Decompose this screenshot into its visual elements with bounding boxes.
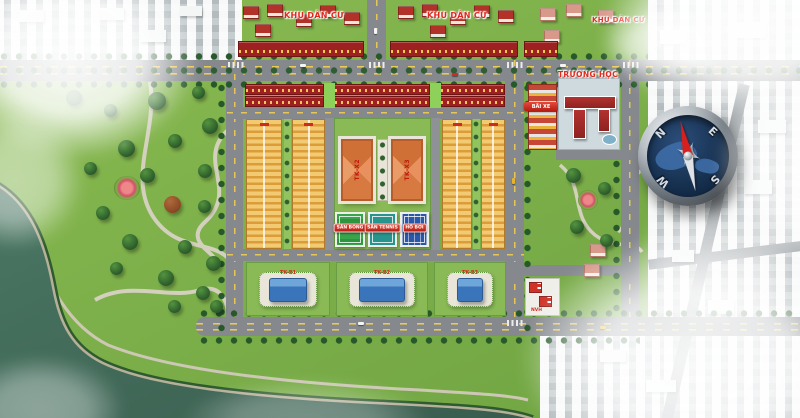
autumn-tree <box>164 196 181 213</box>
villa-house <box>255 24 271 37</box>
tree-row <box>217 84 226 334</box>
compass-west-label: W <box>654 173 672 191</box>
car <box>560 64 566 67</box>
villa-house <box>498 10 514 23</box>
villa-house <box>540 8 556 21</box>
blue-roof-building <box>359 278 405 302</box>
tower-plaza <box>377 139 388 201</box>
blue-roof-building <box>457 278 483 302</box>
swimming-pool-court: HỒ BƠI <box>400 212 429 247</box>
tree <box>198 164 212 178</box>
villa-house <box>267 4 283 17</box>
tree <box>110 262 123 275</box>
tennis-court-banner: SÂN TENNIS <box>364 224 401 233</box>
amenity-lot-1: TK-B1 <box>246 262 330 316</box>
villa-house <box>243 6 259 19</box>
pool-block-2-code: TK-B2 <box>337 270 427 276</box>
blue-roof-building <box>269 278 307 302</box>
shophouse-row <box>334 84 430 95</box>
car <box>374 28 377 34</box>
tree <box>96 206 110 220</box>
shophouse-row <box>524 41 558 57</box>
tower-block-left: TK-X2 <box>341 139 373 201</box>
rowhouse-block <box>442 119 472 249</box>
road-inner-south <box>227 249 524 261</box>
shophouse-row <box>245 84 324 95</box>
tree <box>206 256 221 271</box>
green-gap <box>324 83 335 108</box>
swimming-pool-banner: HỒ BƠI <box>402 224 426 233</box>
shophouse-row <box>334 96 430 107</box>
villa-house <box>398 6 414 19</box>
villa-house <box>566 4 582 17</box>
cloud <box>600 8 730 83</box>
compass-pivot <box>684 152 693 161</box>
shophouse-row <box>245 96 324 107</box>
car <box>512 178 515 184</box>
shophouse-row <box>440 96 505 107</box>
tree <box>198 200 211 213</box>
tree <box>84 162 97 175</box>
car <box>452 73 458 76</box>
tree <box>158 270 174 286</box>
villa-house <box>344 12 360 25</box>
tree <box>600 234 613 247</box>
pool-block-3-code: TK-B3 <box>435 270 505 276</box>
tree <box>196 286 210 300</box>
tower-right-code: TK-X3 <box>404 159 411 181</box>
shophouse-row <box>390 41 518 57</box>
tree <box>168 300 181 313</box>
football-field-banner: SÂN BÓNG <box>334 224 367 233</box>
shophouse-row <box>440 84 505 95</box>
football-field: SÂN BÓNG <box>335 212 365 247</box>
rowhouse-block <box>292 119 325 249</box>
tree <box>210 300 223 313</box>
amenity-lot-2: TK-B2 <box>336 262 428 316</box>
green-gap <box>430 83 441 108</box>
community-house-building <box>529 282 542 293</box>
compass-east-label: E <box>706 124 720 139</box>
tree <box>178 240 192 254</box>
tower-left-code: TK-X2 <box>354 159 361 181</box>
road-east-boundary <box>505 60 524 336</box>
compass-north-label: N <box>653 126 669 142</box>
residential-area-label: KHU DÂN CƯ <box>284 11 344 20</box>
school-building <box>573 109 586 139</box>
school-building <box>598 109 610 132</box>
pool-block-1-code: TK-B1 <box>247 270 329 276</box>
tower-block-right: TK-X3 <box>391 139 423 201</box>
tree <box>140 168 155 183</box>
car <box>300 64 306 67</box>
green-alley <box>284 119 291 249</box>
tree <box>566 168 581 183</box>
tree <box>168 134 182 148</box>
school-building <box>564 96 616 109</box>
tree <box>570 220 584 234</box>
tree <box>598 182 611 195</box>
tree <box>202 118 218 134</box>
residential-area-label: KHU DÂN CƯ <box>427 11 487 20</box>
road-school-south <box>556 150 640 160</box>
parking-lot <box>528 84 557 150</box>
rowhouse-block <box>481 119 505 249</box>
school-label: TRƯỜNG HỌC <box>558 70 618 79</box>
tree <box>122 234 138 250</box>
masterplan-map: TK-X2 TK-X3 SÂN BÓNG SÂN TENNIS HỒ BƠI T… <box>0 0 800 418</box>
amenity-lot-3: TK-B3 <box>434 262 506 316</box>
villa-house <box>430 25 446 38</box>
road-internal-2 <box>431 118 440 250</box>
shophouse-row <box>238 41 364 57</box>
rowhouse-block <box>246 119 282 249</box>
flower-bed <box>114 176 140 200</box>
school-playground <box>602 134 617 145</box>
parking-banner: BÃI XE <box>524 102 558 111</box>
tennis-court: SÂN TENNIS <box>368 212 397 247</box>
flower-bed <box>578 190 598 210</box>
green-alley <box>473 119 480 249</box>
road-west-boundary <box>226 60 243 336</box>
car <box>358 322 364 325</box>
crosswalk <box>507 320 524 326</box>
